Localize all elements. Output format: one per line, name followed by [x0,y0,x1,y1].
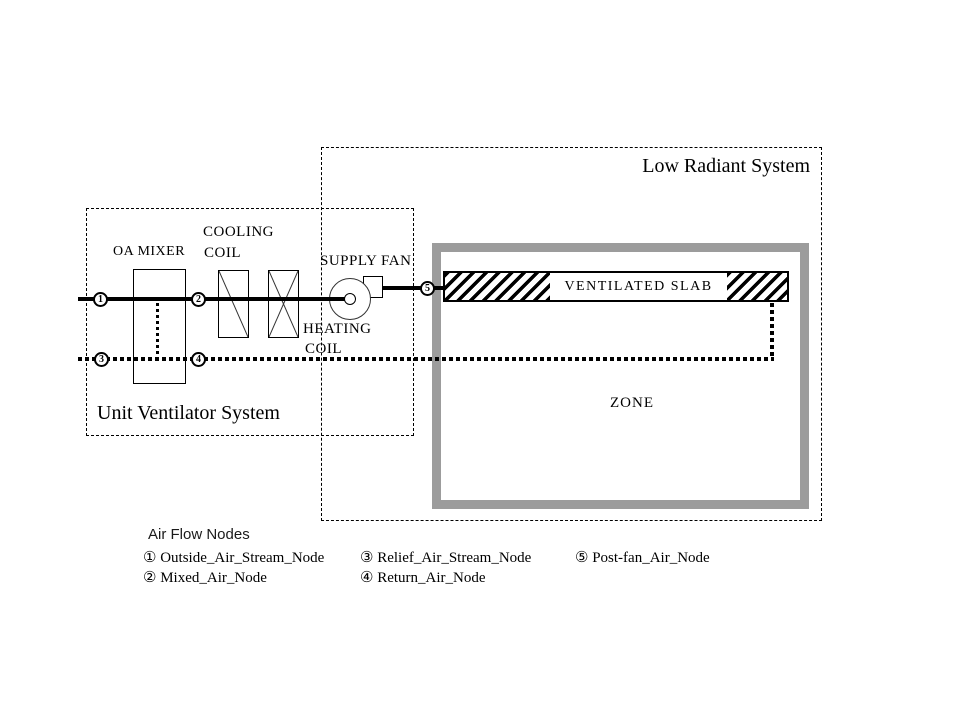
legend-item-return-air: ④ Return_Air_Node [360,568,486,587]
slab-hatch-right [727,273,787,300]
heating-coil-label-line2: COIL [305,341,342,358]
legend-item-post-fan: ⑤ Post-fan_Air_Node [575,548,710,567]
return-air-line [78,357,774,361]
cooling-coil-label-line2: COIL [204,245,241,262]
legend-item-mixed-air: ② Mixed_Air_Node [143,568,267,587]
slab-hatch-left [445,273,550,300]
hvac-system-diagram: Low Radiant System Unit Ventilator Syste… [0,0,960,720]
node-1-outside-air: 1 [93,292,108,307]
legend-item-relief-air: ③ Relief_Air_Stream_Node [360,548,531,567]
heating-coil-label-line1: HEATING [303,321,372,338]
zone-label: ZONE [610,395,654,412]
cooling-coil-diagonal [219,271,248,337]
oa-mixer-box [133,269,186,384]
node-5-post-fan: 5 [420,281,435,296]
heating-coil-cross [269,271,298,337]
cooling-coil-label-line1: COOLING [203,224,274,241]
mixer-recirculation-line [156,303,159,357]
supply-fan-label: SUPPLY FAN [320,253,411,270]
ventilated-slab: VENTILATED SLAB [443,271,789,302]
ventilated-slab-label: VENTILATED SLAB [550,273,727,300]
heating-coil-box [268,270,299,338]
node-4-return-air: 4 [191,352,206,367]
unit-ventilator-system-title: Unit Ventilator System [97,402,280,425]
supply-air-line [78,297,350,301]
oa-mixer-label: OA MIXER [113,244,185,260]
node-2-mixed-air: 2 [191,292,206,307]
slab-return-drop-line [770,303,774,359]
supply-fan-hub [344,293,356,305]
node-3-relief-air: 3 [94,352,109,367]
legend-title: Air Flow Nodes [148,526,250,543]
low-radiant-system-title: Low Radiant System [642,155,810,178]
cooling-coil-box [218,270,249,338]
legend-item-outside-air: ① Outside_Air_Stream_Node [143,548,324,567]
